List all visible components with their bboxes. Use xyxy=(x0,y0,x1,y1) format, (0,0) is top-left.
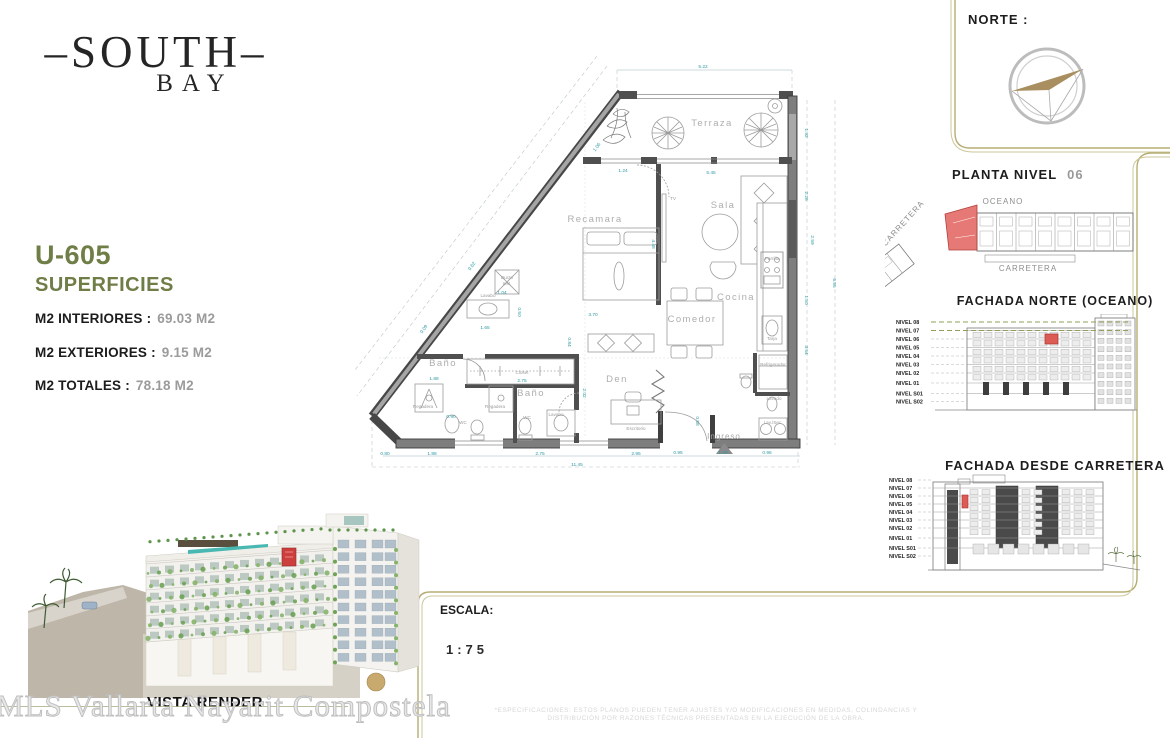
svg-text:CARRETERA: CARRETERA xyxy=(885,199,926,248)
unit-id: U-605 xyxy=(35,240,111,271)
svg-text:NIVEL 01: NIVEL 01 xyxy=(889,536,912,542)
svg-text:1.88: 1.88 xyxy=(429,376,439,382)
svg-text:NIVEL 08: NIVEL 08 xyxy=(889,478,912,484)
building-render xyxy=(28,486,423,698)
svg-text:Parrilla: Parrilla xyxy=(765,256,780,261)
svg-text:5.22: 5.22 xyxy=(698,64,708,70)
site-plan-level: 06 xyxy=(1067,167,1083,182)
bathroom-fixtures xyxy=(415,374,752,440)
svg-text:NIVEL 02: NIVEL 02 xyxy=(889,526,912,532)
svg-text:1.50: 1.50 xyxy=(803,295,809,305)
svg-text:NIVEL 03: NIVEL 03 xyxy=(889,518,912,524)
svg-text:Closet: Closet xyxy=(515,370,529,375)
svg-text:Terraza: Terraza xyxy=(691,118,732,129)
scale-value: 1:75 xyxy=(446,642,488,657)
svg-text:2.95: 2.95 xyxy=(631,451,641,457)
svg-text:WC: WC xyxy=(523,415,531,420)
bed-icon xyxy=(583,228,659,352)
svg-text:Ducto: Ducto xyxy=(501,275,513,280)
svg-text:NIVEL 06: NIVEL 06 xyxy=(889,494,912,500)
floorplan-drawing: TerrazaSalaRecamaraCocinaComedorDenBañoB… xyxy=(355,48,880,485)
svg-text:0.90: 0.90 xyxy=(446,414,456,420)
svg-text:Regadera: Regadera xyxy=(485,404,506,409)
svg-text:Cocina: Cocina xyxy=(717,292,755,303)
m2-interiores-value: 69.03 M2 xyxy=(157,311,215,326)
m2-totales-value: 78.18 M2 xyxy=(136,378,194,393)
site-plan-drawing: OCEANOCARRETERACARRETERA xyxy=(885,183,1140,293)
svg-text:1.04: 1.04 xyxy=(497,290,507,296)
svg-text:1.88: 1.88 xyxy=(427,451,437,457)
disclaimer-text: *ESPECIFICACIONES: ESTOS PLANOS PUEDEN T… xyxy=(490,707,922,722)
svg-text:0.58: 0.58 xyxy=(694,416,700,426)
elevation-north-drawing: NIVEL 08NIVEL 07NIVEL 06NIVEL 05NIVEL 04… xyxy=(895,314,1140,414)
m2-exteriores-row: M2 EXTERIORES :9.15 M2 xyxy=(35,345,212,360)
svg-text:Ingreso: Ingreso xyxy=(707,432,741,441)
svg-text:0.80: 0.80 xyxy=(380,451,390,457)
svg-text:3.70: 3.70 xyxy=(588,312,598,318)
watermark-text: MLS Vallarta Nayarit Compostela xyxy=(0,688,451,724)
compass-icon xyxy=(1000,38,1094,132)
svg-text:OCEANO: OCEANO xyxy=(983,197,1024,206)
elevation-road-drawing: NIVEL 08NIVEL 07NIVEL 06NIVEL 05NIVEL 04… xyxy=(888,472,1148,580)
svg-text:Lavado: Lavado xyxy=(766,396,782,401)
svg-text:2.75: 2.75 xyxy=(535,451,545,457)
svg-text:1.24: 1.24 xyxy=(618,168,628,174)
disclaimer-line1: *ESPECIFICACIONES: ESTOS PLANOS PUEDEN T… xyxy=(490,707,922,715)
svg-text:Sala: Sala xyxy=(711,200,736,211)
svg-text:0.96: 0.96 xyxy=(762,450,772,456)
svg-text:Lavabo: Lavabo xyxy=(548,412,564,417)
svg-text:Recamara: Recamara xyxy=(567,214,622,225)
svg-text:Lav./Sec.: Lav./Sec. xyxy=(764,420,783,425)
svg-text:NIVEL 04: NIVEL 04 xyxy=(889,510,912,516)
svg-text:5.45: 5.45 xyxy=(706,170,716,176)
svg-text:9.62: 9.62 xyxy=(467,261,478,272)
svg-text:Baño: Baño xyxy=(429,358,457,369)
svg-text:Regadera: Regadera xyxy=(413,404,434,409)
svg-text:Comedor: Comedor xyxy=(668,314,717,325)
svg-text:1.65: 1.65 xyxy=(480,325,490,331)
elevation-road-title: FACHADA DESDE CARRETERA xyxy=(930,458,1170,473)
svg-text:NIVEL 02: NIVEL 02 xyxy=(896,371,919,377)
svg-text:2.02: 2.02 xyxy=(581,388,587,398)
svg-text:6.55: 6.55 xyxy=(831,278,837,288)
palm-tree-icon xyxy=(1108,547,1141,564)
m2-totales-row: M2 TOTALES :78.18 M2 xyxy=(35,378,194,393)
svg-text:0.50: 0.50 xyxy=(516,307,522,317)
svg-text:NIVEL 03: NIVEL 03 xyxy=(896,363,919,369)
svg-text:NIVEL 05: NIVEL 05 xyxy=(889,502,912,508)
m2-totales-label: M2 TOTALES : xyxy=(35,378,130,393)
plan-sheet: –SOUTH– BAY U-605 SUPERFICIES M2 INTERIO… xyxy=(0,0,1170,738)
svg-text:NIVEL 07: NIVEL 07 xyxy=(896,329,919,335)
svg-text:CARRETERA: CARRETERA xyxy=(999,264,1057,273)
svg-text:NIVEL 05: NIVEL 05 xyxy=(896,346,919,352)
svg-text:WC: WC xyxy=(459,420,467,425)
svg-text:1.06: 1.06 xyxy=(592,142,603,153)
svg-text:TV: TV xyxy=(670,196,677,201)
svg-text:11.45: 11.45 xyxy=(571,462,583,468)
svg-text:NIVEL 06: NIVEL 06 xyxy=(896,337,919,343)
m2-exteriores-value: 9.15 M2 xyxy=(162,345,212,360)
svg-text:NIVEL S01: NIVEL S01 xyxy=(889,546,916,552)
svg-text:9.09: 9.09 xyxy=(419,324,430,335)
svg-text:NIVEL 01: NIVEL 01 xyxy=(896,381,919,387)
svg-text:NIVEL 04: NIVEL 04 xyxy=(896,354,919,360)
svg-text:2.75: 2.75 xyxy=(517,378,527,384)
m2-interiores-label: M2 INTERIORES : xyxy=(35,311,151,326)
svg-text:2.26: 2.26 xyxy=(803,191,809,201)
svg-text:Baño: Baño xyxy=(517,388,545,399)
site-plan-title: PLANTA NIVEL06 xyxy=(952,167,1084,182)
svg-text:Lavabo: Lavabo xyxy=(480,293,496,298)
svg-text:Escritorio: Escritorio xyxy=(626,426,646,431)
disclaimer-line2: DISTRIBUCIÓN POR RAZONES TÉCNICAS PRESEN… xyxy=(490,715,922,723)
svg-text:Tarja: Tarja xyxy=(767,336,777,341)
svg-text:Den: Den xyxy=(606,374,628,385)
svg-text:NIVEL S02: NIVEL S02 xyxy=(896,400,923,406)
svg-text:NIVEL 07: NIVEL 07 xyxy=(889,486,912,492)
svg-text:0.84: 0.84 xyxy=(566,337,572,347)
svg-text:4.48: 4.48 xyxy=(650,239,656,249)
site-plan-title-text: PLANTA NIVEL xyxy=(952,167,1057,182)
svg-text:Inst.: Inst. xyxy=(503,281,512,286)
svg-text:NIVEL 08: NIVEL 08 xyxy=(896,320,919,326)
svg-text:NIVEL S01: NIVEL S01 xyxy=(896,392,923,398)
svg-text:3.54: 3.54 xyxy=(803,345,809,355)
m2-exteriores-label: M2 EXTERIORES : xyxy=(35,345,156,360)
scale-label: ESCALA: xyxy=(440,603,493,617)
svg-text:2.59: 2.59 xyxy=(809,235,815,245)
svg-text:1.92: 1.92 xyxy=(803,128,809,138)
brand-logo: –SOUTH– BAY xyxy=(30,26,282,98)
elevation-north-title: FACHADA NORTE (OCEANO) xyxy=(935,294,1170,308)
svg-text:NIVEL S02: NIVEL S02 xyxy=(889,554,916,560)
svg-text:Refrigerador: Refrigerador xyxy=(760,362,786,367)
svg-text:1.29: 1.29 xyxy=(718,450,728,456)
kitchen-icon xyxy=(757,203,787,440)
svg-text:0.95: 0.95 xyxy=(673,450,683,456)
north-label: NORTE : xyxy=(968,12,1028,27)
superficies-title: SUPERFICIES xyxy=(35,274,174,297)
m2-interiores-row: M2 INTERIORES :69.03 M2 xyxy=(35,311,215,326)
